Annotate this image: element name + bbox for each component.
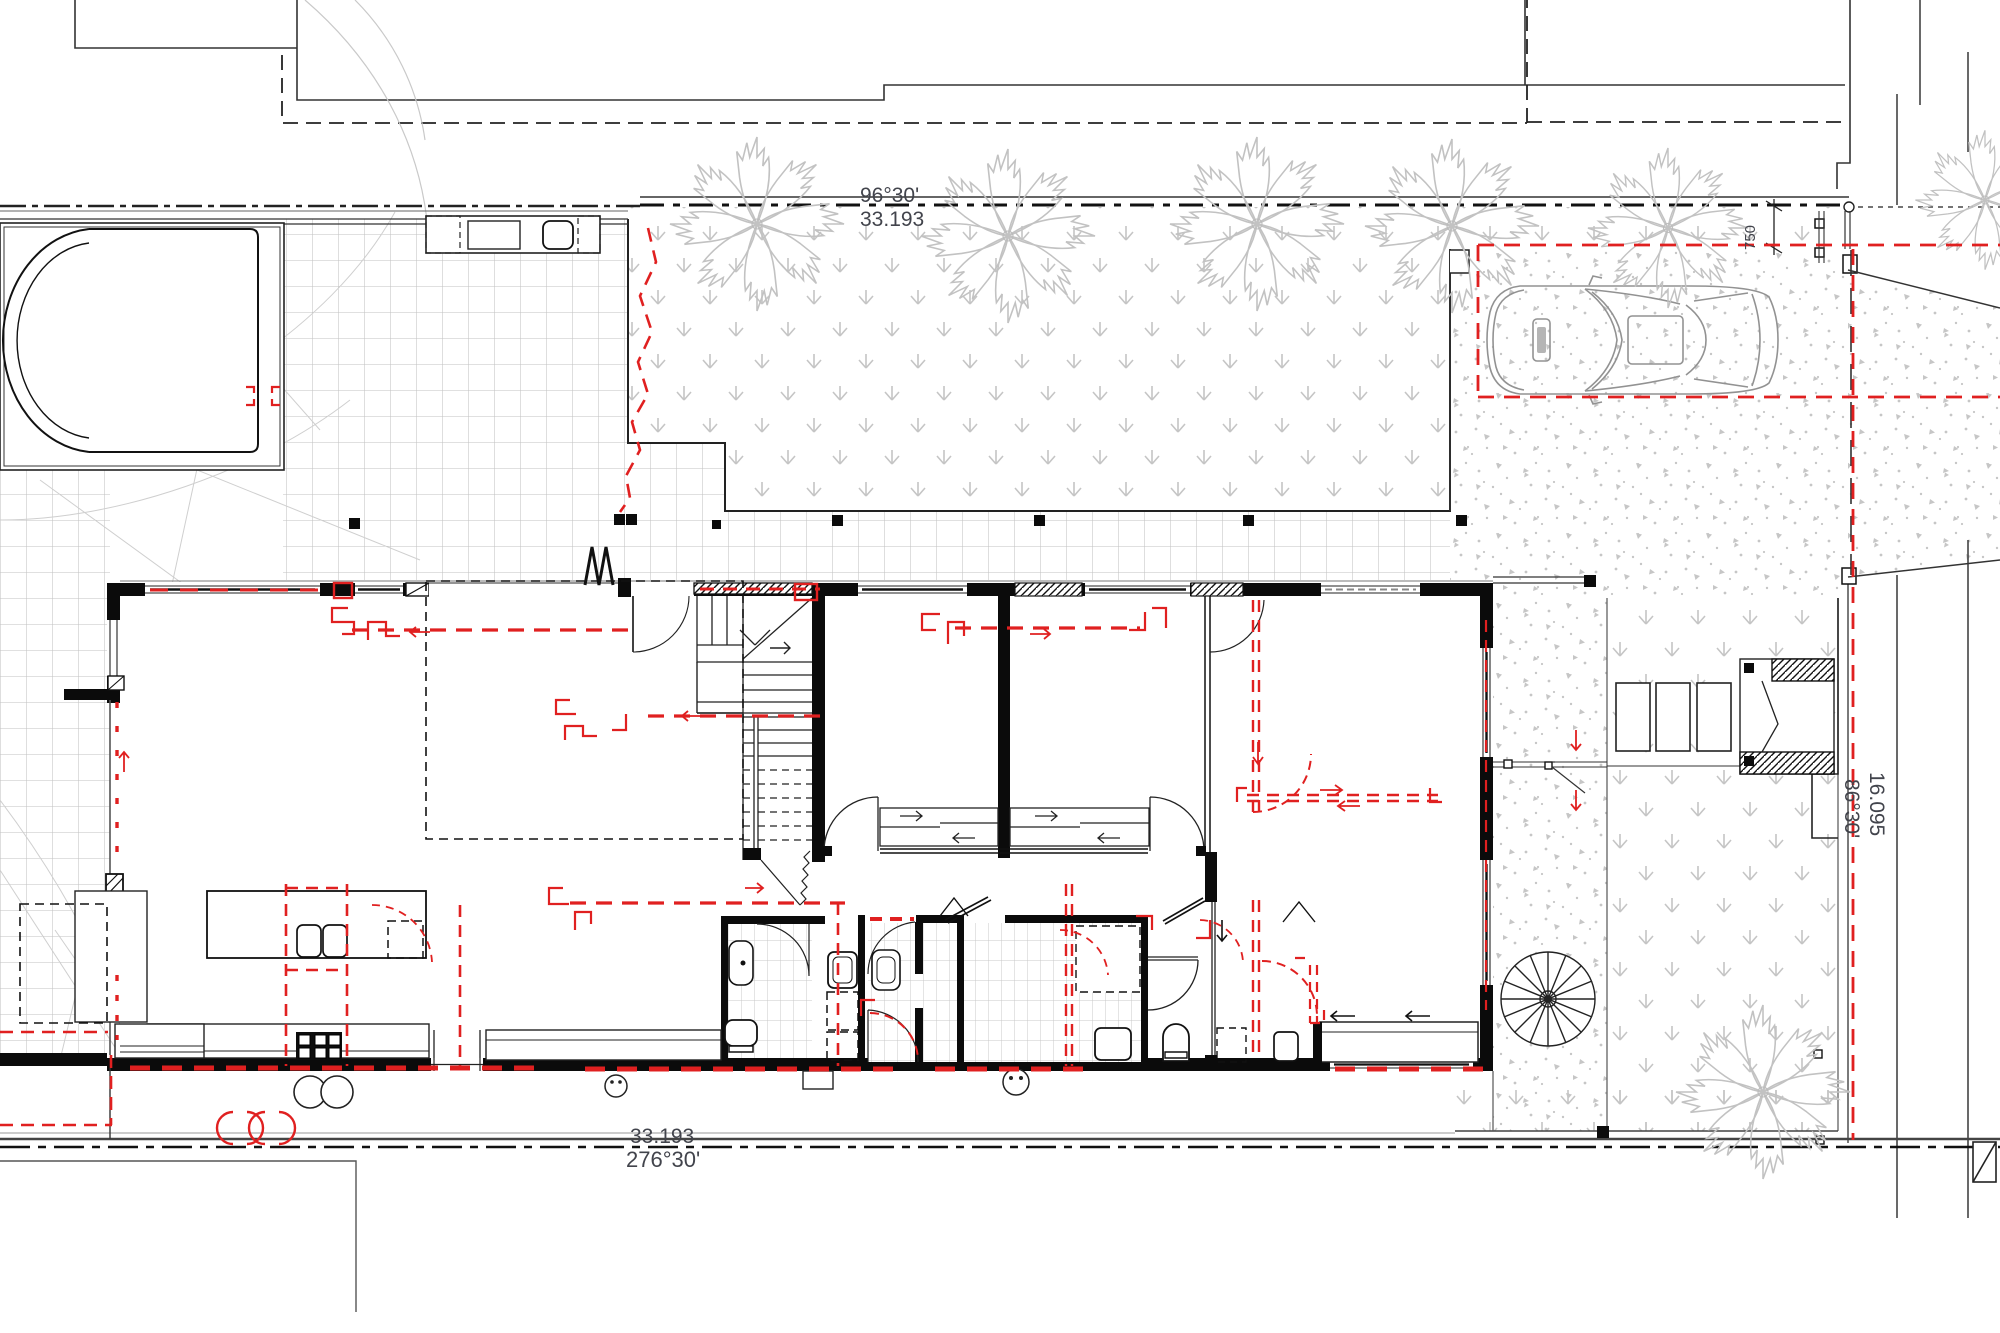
svg-text:750: 750 [1742, 225, 1759, 250]
svg-text:96°30': 96°30' [860, 184, 919, 207]
svg-text:33.193: 33.193 [860, 208, 924, 231]
svg-text:276°30': 276°30' [626, 1147, 700, 1172]
svg-text:33.193: 33.193 [630, 1125, 694, 1148]
svg-text:16.095: 16.095 [1865, 772, 1888, 836]
svg-text:86°30': 86°30' [1840, 779, 1863, 838]
